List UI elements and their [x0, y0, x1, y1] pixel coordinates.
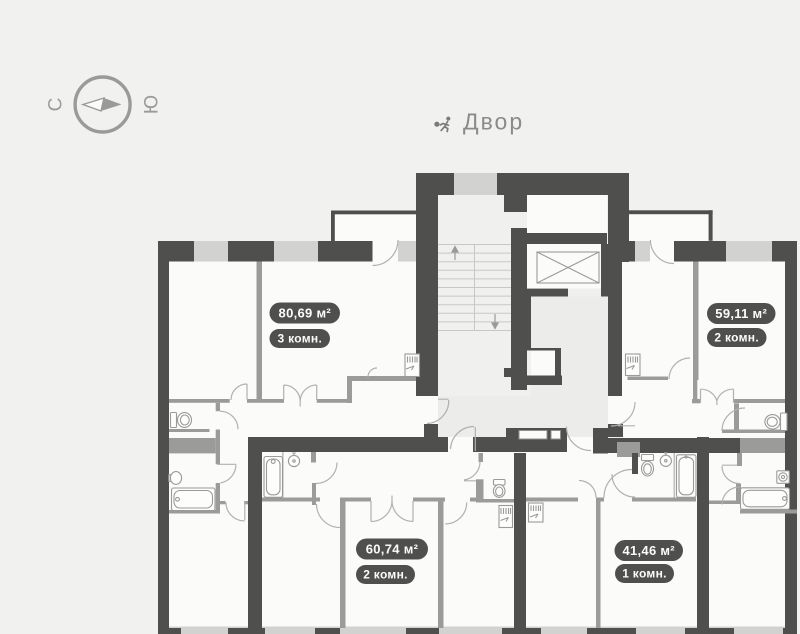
svg-text:Ю: Ю	[142, 95, 163, 114]
svg-text:80,69 м²: 80,69 м²	[279, 306, 332, 321]
svg-text:Двор: Двор	[463, 109, 524, 135]
svg-text:3 комн.: 3 комн.	[278, 332, 323, 346]
svg-text:2 комн.: 2 комн.	[714, 331, 759, 345]
svg-text:41,46 м²: 41,46 м²	[622, 543, 675, 558]
svg-text:59,11 м²: 59,11 м²	[715, 306, 767, 321]
svg-text:2 комн.: 2 комн.	[363, 568, 408, 582]
svg-text:1 комн.: 1 комн.	[622, 567, 667, 581]
svg-text:60,74 м²: 60,74 м²	[366, 542, 419, 557]
svg-text:С: С	[46, 98, 67, 112]
